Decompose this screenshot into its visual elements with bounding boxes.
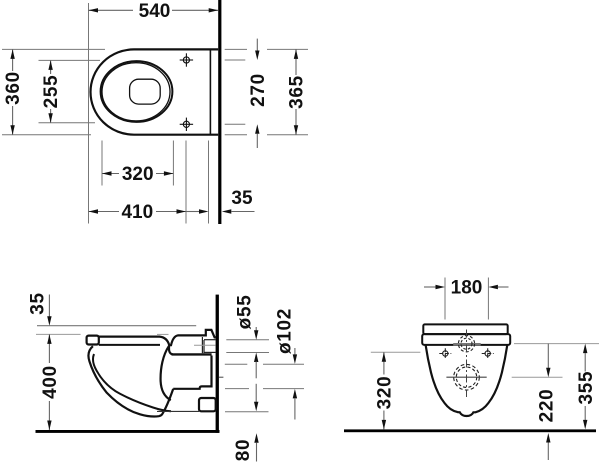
svg-text:270: 270 [248, 73, 269, 107]
svg-text:320: 320 [375, 376, 396, 410]
svg-text:410: 410 [121, 202, 153, 223]
svg-text:35: 35 [231, 188, 253, 209]
svg-text:80: 80 [233, 439, 254, 462]
svg-text:220: 220 [537, 389, 558, 423]
svg-text:180: 180 [451, 278, 483, 299]
svg-text:ø55: ø55 [235, 294, 256, 329]
svg-text:540: 540 [139, 1, 171, 22]
svg-text:355: 355 [576, 371, 597, 405]
svg-text:365: 365 [287, 75, 308, 109]
svg-text:ø102: ø102 [275, 308, 296, 354]
svg-text:320: 320 [122, 164, 154, 185]
svg-text:255: 255 [41, 75, 62, 109]
svg-text:35: 35 [28, 292, 49, 315]
svg-text:360: 360 [3, 71, 24, 105]
svg-text:400: 400 [40, 365, 61, 399]
